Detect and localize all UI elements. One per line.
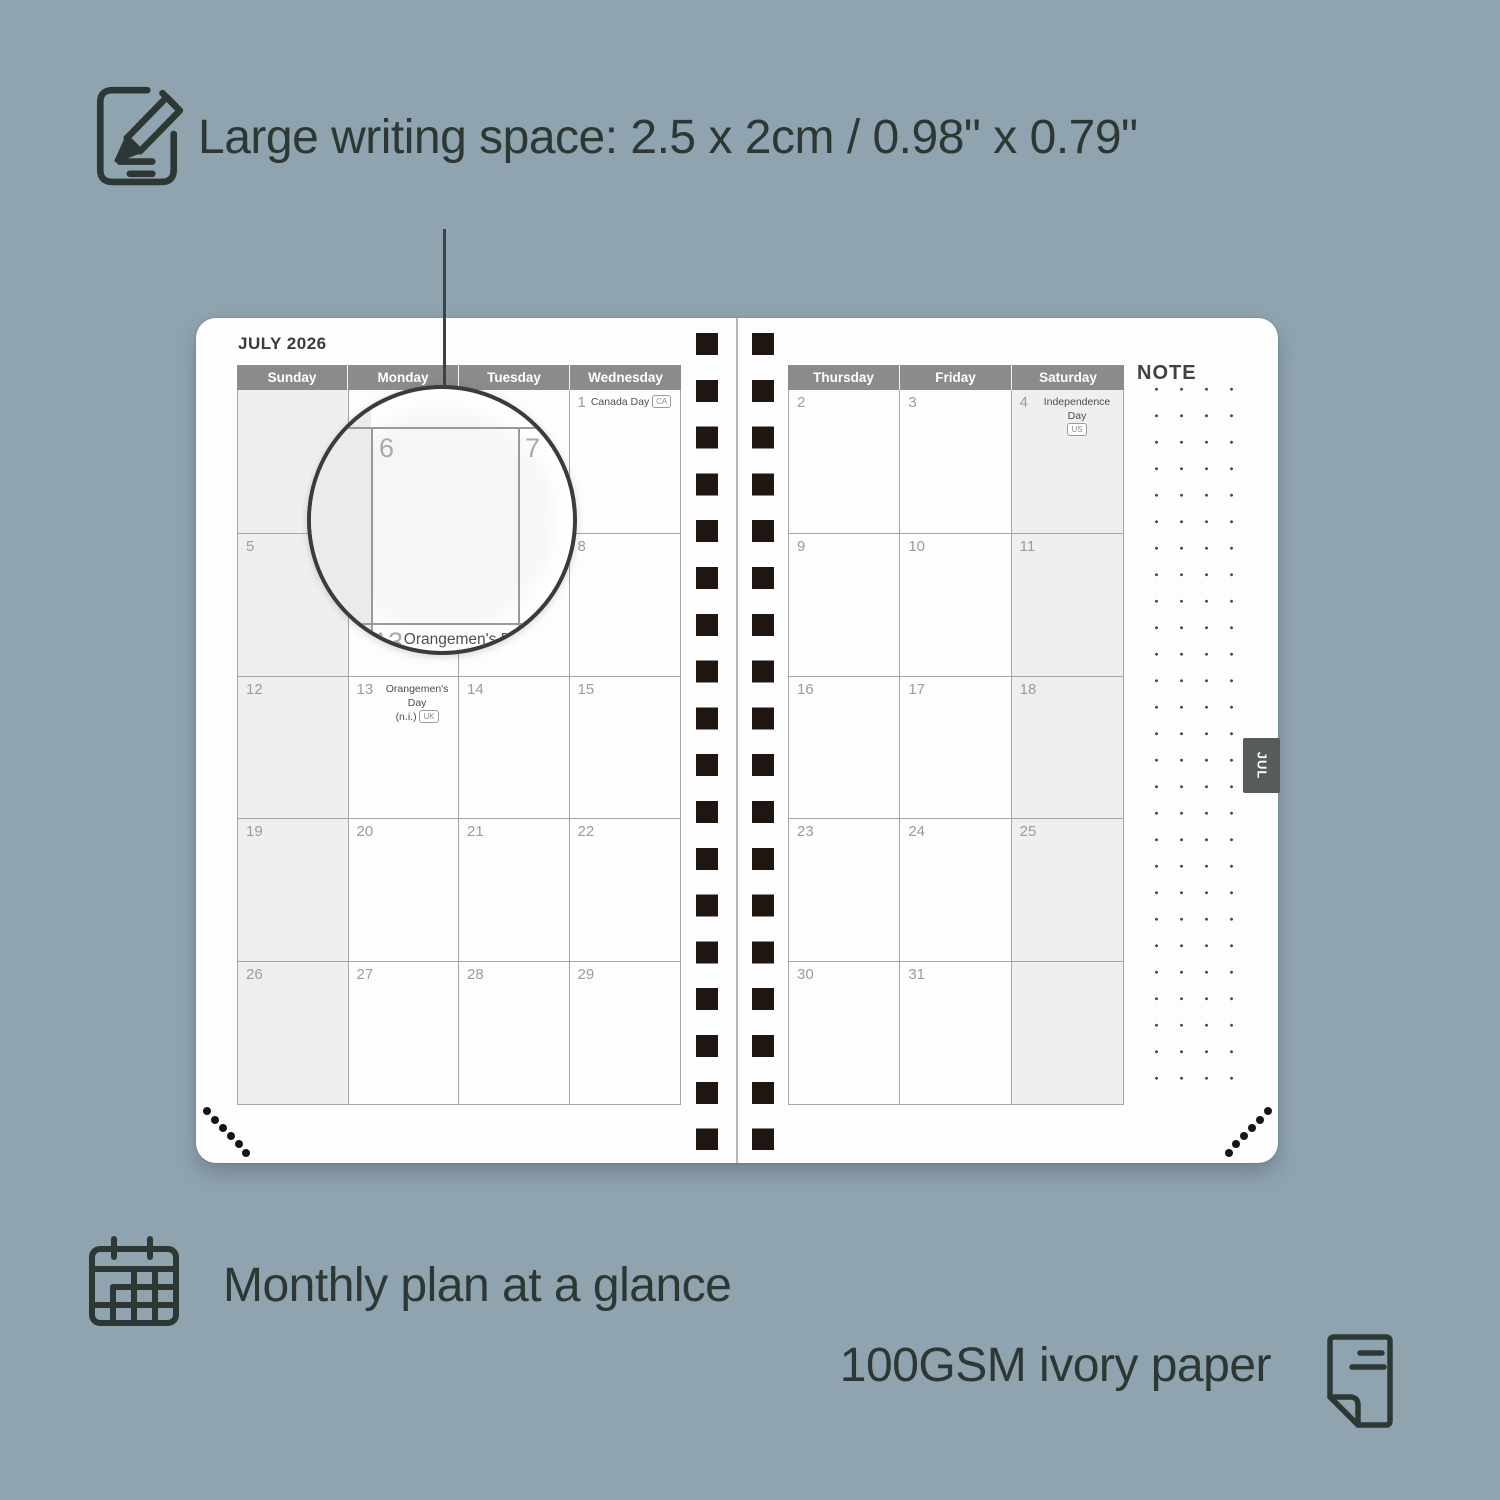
month-title: JULY 2026 (238, 334, 327, 354)
perforation-dot (211, 1116, 219, 1124)
calendar-right-page: ThursdayFridaySaturday 234Independence D… (788, 365, 1124, 1105)
day-number: 10 (908, 539, 925, 556)
day-header-friday: Friday (900, 365, 1012, 390)
day-number: 29 (578, 967, 595, 984)
day-number: 13 (357, 682, 374, 699)
day-header-thursday: Thursday (788, 365, 900, 390)
day-cell-23: 23 (789, 818, 900, 961)
day-cell-10: 10 (900, 533, 1011, 676)
day-number: 28 (467, 967, 484, 984)
perforation-dot (1248, 1124, 1256, 1132)
day-number: 16 (797, 682, 814, 699)
magnified-gridline (319, 623, 573, 625)
day-cell-30: 30 (789, 961, 900, 1104)
magnified-gridline (371, 427, 373, 655)
day-cell-13: 13Orangemen's Day(n.i.) UK (349, 676, 460, 819)
day-number: 14 (467, 682, 484, 699)
day-header-saturday: Saturday (1012, 365, 1124, 390)
day-number: 17 (908, 682, 925, 699)
day-cell-19: 19 (238, 818, 349, 961)
day-number: 1 (578, 395, 586, 412)
day-cell-9: 9 (789, 533, 900, 676)
day-header-tuesday: Tuesday (459, 365, 570, 390)
magnified-day-7: 7 (525, 433, 540, 464)
perforation-dot (203, 1107, 211, 1115)
day-cell-22: 22 (570, 818, 681, 961)
day-cell-26: 26 (238, 961, 349, 1104)
day-header-wednesday: Wednesday (570, 365, 681, 390)
day-cell-15: 15 (570, 676, 681, 819)
day-cell-8: 8 (570, 533, 681, 676)
day-number: 27 (357, 967, 374, 984)
day-cell-2: 2 (789, 390, 900, 533)
day-cell-21: 21 (459, 818, 570, 961)
feature-paper-text: 100GSM ivory paper (840, 1338, 1271, 1393)
magnifier-lens: 6 7 13 Orangemen's Day (n.i.) UK (307, 385, 577, 655)
day-cell-4: 4Independence DayUS (1012, 390, 1123, 533)
spiral-binding-left (696, 333, 718, 1150)
holiday-label: Independence DayUS (1033, 395, 1121, 438)
day-number: 21 (467, 824, 484, 841)
perforation-dot (219, 1124, 227, 1132)
magnified-holiday-name: Orangemen's Day (393, 631, 539, 649)
day-cell-20: 20 (349, 818, 460, 961)
magnified-gridline (518, 427, 520, 655)
day-number: 8 (578, 539, 586, 556)
day-number: 11 (1020, 539, 1036, 556)
day-number: 26 (246, 967, 263, 984)
perforation-dot (235, 1140, 243, 1148)
day-cell-empty (1012, 961, 1123, 1104)
day-number: 23 (797, 824, 814, 841)
calendar-grid: 234Independence DayUS9101116171823242530… (788, 390, 1124, 1105)
country-badge: US (1067, 423, 1086, 436)
day-cell-1: 1Canada Day CA (570, 390, 681, 533)
perforation-dot (1232, 1140, 1240, 1148)
feature-writing-space-text: Large writing space: 2.5 x 2cm / 0.98" x… (198, 110, 1138, 165)
country-badge: UK (419, 710, 438, 723)
paper-sheet-icon (1320, 1330, 1400, 1432)
day-number: 3 (908, 395, 916, 412)
perforation-dot (227, 1132, 235, 1140)
day-number: 22 (578, 824, 595, 841)
writing-note-pencil-icon (86, 76, 188, 192)
country-badge: CA (652, 395, 671, 408)
spiral-binding-right (752, 333, 774, 1150)
day-cell-17: 17 (900, 676, 1011, 819)
page-gap-line (736, 318, 738, 1163)
day-cell-27: 27 (349, 961, 460, 1104)
month-tab-jul: JUL (1243, 738, 1280, 793)
note-label: NOTE (1137, 362, 1205, 387)
day-number: 12 (246, 682, 263, 699)
day-number: 5 (246, 539, 254, 556)
day-cell-29: 29 (570, 961, 681, 1104)
magnified-gridline (321, 427, 571, 429)
day-cell-24: 24 (900, 818, 1011, 961)
perforation-dot (242, 1149, 250, 1157)
day-header-row: ThursdayFridaySaturday (788, 365, 1124, 390)
perforation-dot (1264, 1107, 1272, 1115)
day-number: 31 (908, 967, 925, 984)
day-cell-12: 12 (238, 676, 349, 819)
month-tab-label: JUL (1254, 752, 1269, 780)
day-number: 9 (797, 539, 805, 556)
day-cell-28: 28 (459, 961, 570, 1104)
day-number: 25 (1020, 824, 1037, 841)
day-header-sunday: Sunday (237, 365, 348, 390)
product-image: Large writing space: 2.5 x 2cm / 0.98" x… (0, 0, 1500, 1500)
day-cell-11: 11 (1012, 533, 1123, 676)
day-number: 20 (357, 824, 374, 841)
day-cell-14: 14 (459, 676, 570, 819)
feature-monthly-plan-text: Monthly plan at a glance (223, 1258, 731, 1313)
day-number: 24 (908, 824, 925, 841)
day-number: 15 (578, 682, 595, 699)
holiday-label: Orangemen's Day(n.i.) UK (378, 682, 456, 725)
note-dot-grid (1138, 368, 1244, 1103)
day-cell-25: 25 (1012, 818, 1123, 961)
day-number: 18 (1020, 682, 1037, 699)
day-number: 30 (797, 967, 814, 984)
day-cell-3: 3 (900, 390, 1011, 533)
day-number: 4 (1020, 395, 1028, 412)
magnified-day-6: 6 (379, 433, 394, 464)
day-number: 19 (246, 824, 263, 841)
perforation-dot (1240, 1132, 1248, 1140)
day-cell-31: 31 (900, 961, 1011, 1104)
day-cell-16: 16 (789, 676, 900, 819)
holiday-label: Canada Day CA (591, 395, 671, 409)
magnified-sunday-shade (311, 389, 371, 655)
day-cell-18: 18 (1012, 676, 1123, 819)
planner-notebook: JULY 2026 SundayMondayTuesdayWednesday 1… (196, 318, 1278, 1163)
perforation-dot (1256, 1116, 1264, 1124)
perforation-dot (1225, 1149, 1233, 1157)
magnifier-pointer-line (443, 229, 446, 387)
day-number: 2 (797, 395, 805, 412)
calendar-grid-icon (86, 1234, 182, 1330)
